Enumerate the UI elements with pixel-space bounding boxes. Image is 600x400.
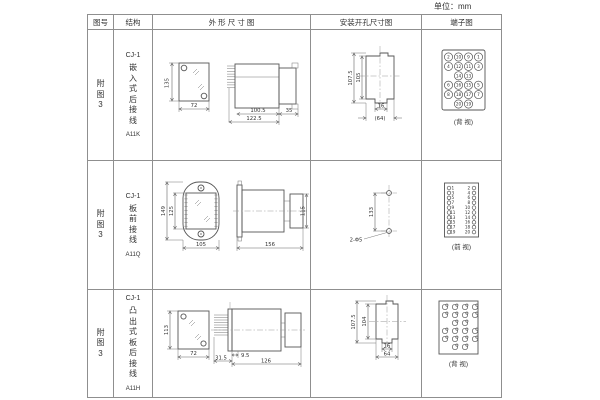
mounting-diagram-a11q: 133 2-Φ5 (311, 161, 422, 290)
code-label: A11K (126, 131, 140, 139)
view-label: (背 视) (449, 359, 468, 368)
row2-structure-cell: CJ-1 板前接线 A11Q (114, 161, 153, 290)
view-label: (背 视) (454, 117, 473, 126)
svg-text:2: 2 (447, 55, 450, 60)
svg-text:18: 18 (456, 92, 462, 97)
dim-rear-height: 115 (301, 206, 307, 216)
row3-outline-cell: 113 72 9.5 31.5 126 (153, 290, 311, 397)
dim-total-depth: 156 (265, 242, 276, 248)
dim-total-depth: 122.5 (246, 116, 261, 122)
row2-fig-cell: 附图3 (88, 161, 114, 290)
row1-fig-cell: 附图3 (88, 30, 114, 161)
header-fig-no: 图号 (88, 15, 114, 30)
dim-pin-length: 31.5 (215, 355, 227, 361)
dim-front-height: 135 (165, 78, 171, 88)
code-label: A11H (126, 385, 141, 393)
svg-text:19: 19 (450, 230, 456, 235)
dim-cutout-width: (64) (375, 116, 386, 122)
dim-front-width: 105 (196, 242, 206, 248)
svg-text:7: 7 (477, 92, 480, 97)
row3-terminal-cell: (背 视) (422, 290, 501, 397)
row2-mounting-cell: 133 2-Φ5 (311, 161, 422, 290)
row1-structure-cell: CJ-1 嵌入式后接线 A11K (114, 30, 153, 161)
dim-outer-height: 107.5 (348, 70, 354, 85)
svg-text:11: 11 (466, 64, 472, 69)
dim-pin-offset: 9.5 (241, 353, 249, 359)
svg-text:16: 16 (456, 83, 462, 88)
holes-label: 2-Φ5 (350, 238, 363, 244)
mount-type-label: 凸出式板后接线 (129, 306, 137, 380)
mounting-diagram-a11h: 107.5 104 16 64 (311, 290, 422, 397)
model-label: CJ-1 (126, 192, 141, 201)
svg-text:1: 1 (477, 55, 480, 60)
svg-text:14: 14 (456, 73, 462, 78)
view-label: (前 视) (452, 242, 471, 251)
row1-mounting-cell: 107.5 105 16 (64) (311, 30, 422, 161)
svg-text:13: 13 (466, 73, 472, 78)
terminal-diagram-a11q: 1234567891011121314151617181920 (前 视) (422, 161, 501, 290)
dim-inner-height: 125 (169, 206, 175, 216)
row1-outline-cell: 135 72 100.5 122.5 35 (153, 30, 311, 161)
outline-diagram-a11q: 149 125 105 156 115 (153, 161, 311, 290)
fig-label: 附图3 (97, 209, 105, 241)
svg-text:12: 12 (456, 64, 462, 69)
dim-body-depth: 100.5 (250, 108, 265, 114)
terminal-pins-row3 (442, 304, 478, 350)
model-label: CJ-1 (126, 294, 141, 303)
dim-outer-height: 107.5 (351, 314, 357, 329)
svg-text:19: 19 (466, 102, 472, 107)
unit-label: 单位：mm (434, 1, 471, 12)
dim-hole-spacing: 133 (369, 207, 375, 217)
svg-text:15: 15 (466, 83, 472, 88)
header-structure: 结构 (114, 15, 153, 30)
mount-type-label: 板前接线 (129, 204, 137, 246)
dim-notch-width: 16 (378, 104, 385, 110)
row3-fig-cell: 附图3 (88, 290, 114, 397)
header-terminal: 端子图 (422, 15, 501, 30)
svg-text:4: 4 (447, 64, 450, 69)
terminal-pins-row1: 2109141211314136161558181772019 (444, 53, 482, 108)
terminal-diagram-a11k: 2109141211314136161558181772019 (背 视) (422, 30, 501, 161)
dim-body-depth: 126 (261, 358, 272, 364)
svg-text:9: 9 (467, 55, 470, 60)
row3-mounting-cell: 107.5 104 16 64 (311, 290, 422, 397)
mount-type-label: 嵌入式后接线 (129, 63, 137, 126)
outline-diagram-a11k: 135 72 100.5 122.5 35 (153, 30, 311, 161)
row1-terminal-cell: 2109141211314136161558181772019 (背 视) (422, 30, 501, 161)
fig-label: 附图3 (97, 79, 105, 111)
dim-inner-height: 105 (356, 72, 362, 82)
dim-front-width: 72 (191, 103, 198, 109)
dim-outer-height: 149 (161, 206, 167, 216)
svg-text:5: 5 (477, 83, 480, 88)
dim-front-width: 72 (190, 351, 197, 357)
header-mounting: 安装开孔尺寸图 (311, 15, 422, 30)
mounting-diagram-a11k: 107.5 105 16 (64) (311, 30, 422, 161)
fig-label: 附图3 (97, 328, 105, 360)
svg-text:8: 8 (447, 92, 450, 97)
dim-notch-width: 16 (384, 343, 391, 349)
spec-table: 图号 结构 外 形 尺 寸 图 安装开孔尺寸图 端子图 附图3 CJ-1 嵌入式… (87, 14, 502, 398)
svg-text:20: 20 (456, 102, 462, 107)
svg-text:3: 3 (477, 64, 480, 69)
outline-diagram-a11h: 113 72 9.5 31.5 126 (153, 290, 311, 397)
dim-cutout-width: 64 (384, 351, 391, 357)
header-outline: 外 形 尺 寸 图 (153, 15, 311, 30)
svg-text:6: 6 (447, 83, 450, 88)
row2-outline-cell: 149 125 105 156 115 (153, 161, 311, 290)
terminal-diagram-a11h: (背 视) (422, 290, 501, 397)
row2-terminal-cell: 1234567891011121314151617181920 (前 视) (422, 161, 501, 290)
svg-text:17: 17 (466, 92, 472, 97)
terminal-pins-row2: 1234567891011121314151617181920 (447, 185, 476, 234)
svg-text:20: 20 (465, 230, 471, 235)
svg-text:10: 10 (456, 55, 462, 60)
dim-rear-width: 35 (286, 108, 293, 114)
dim-front-height: 113 (164, 325, 170, 335)
code-label: A11Q (126, 251, 141, 259)
dim-inner-height: 104 (362, 316, 368, 327)
model-label: CJ-1 (126, 51, 141, 60)
spec-sheet-page: { "unit_label": "单位：mm", "header": { "fi… (0, 0, 600, 400)
row3-structure-cell: CJ-1 凸出式板后接线 A11H (114, 290, 153, 397)
